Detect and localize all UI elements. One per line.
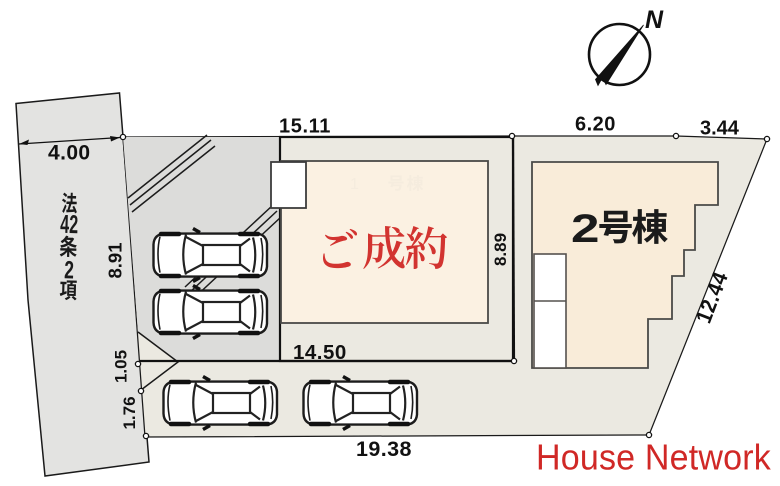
- svg-text:2: 2: [64, 255, 74, 284]
- svg-text:8.89: 8.89: [491, 233, 510, 266]
- svg-text:1.76: 1.76: [120, 396, 139, 429]
- svg-text:8.91: 8.91: [105, 242, 126, 278]
- svg-text:14.50: 14.50: [293, 341, 347, 364]
- svg-text:N: N: [645, 6, 664, 34]
- svg-text:15.11: 15.11: [279, 116, 331, 138]
- svg-text:House Network: House Network: [536, 437, 771, 477]
- svg-text:6.20: 6.20: [575, 114, 616, 136]
- svg-text:1.05: 1.05: [112, 350, 131, 383]
- svg-text:2: 2: [571, 205, 599, 250]
- svg-text:42: 42: [60, 209, 79, 240]
- svg-text:1: 1: [350, 176, 359, 193]
- svg-text:4.00: 4.00: [48, 142, 90, 165]
- svg-text:3.44: 3.44: [700, 118, 740, 140]
- svg-text:19.38: 19.38: [356, 437, 412, 461]
